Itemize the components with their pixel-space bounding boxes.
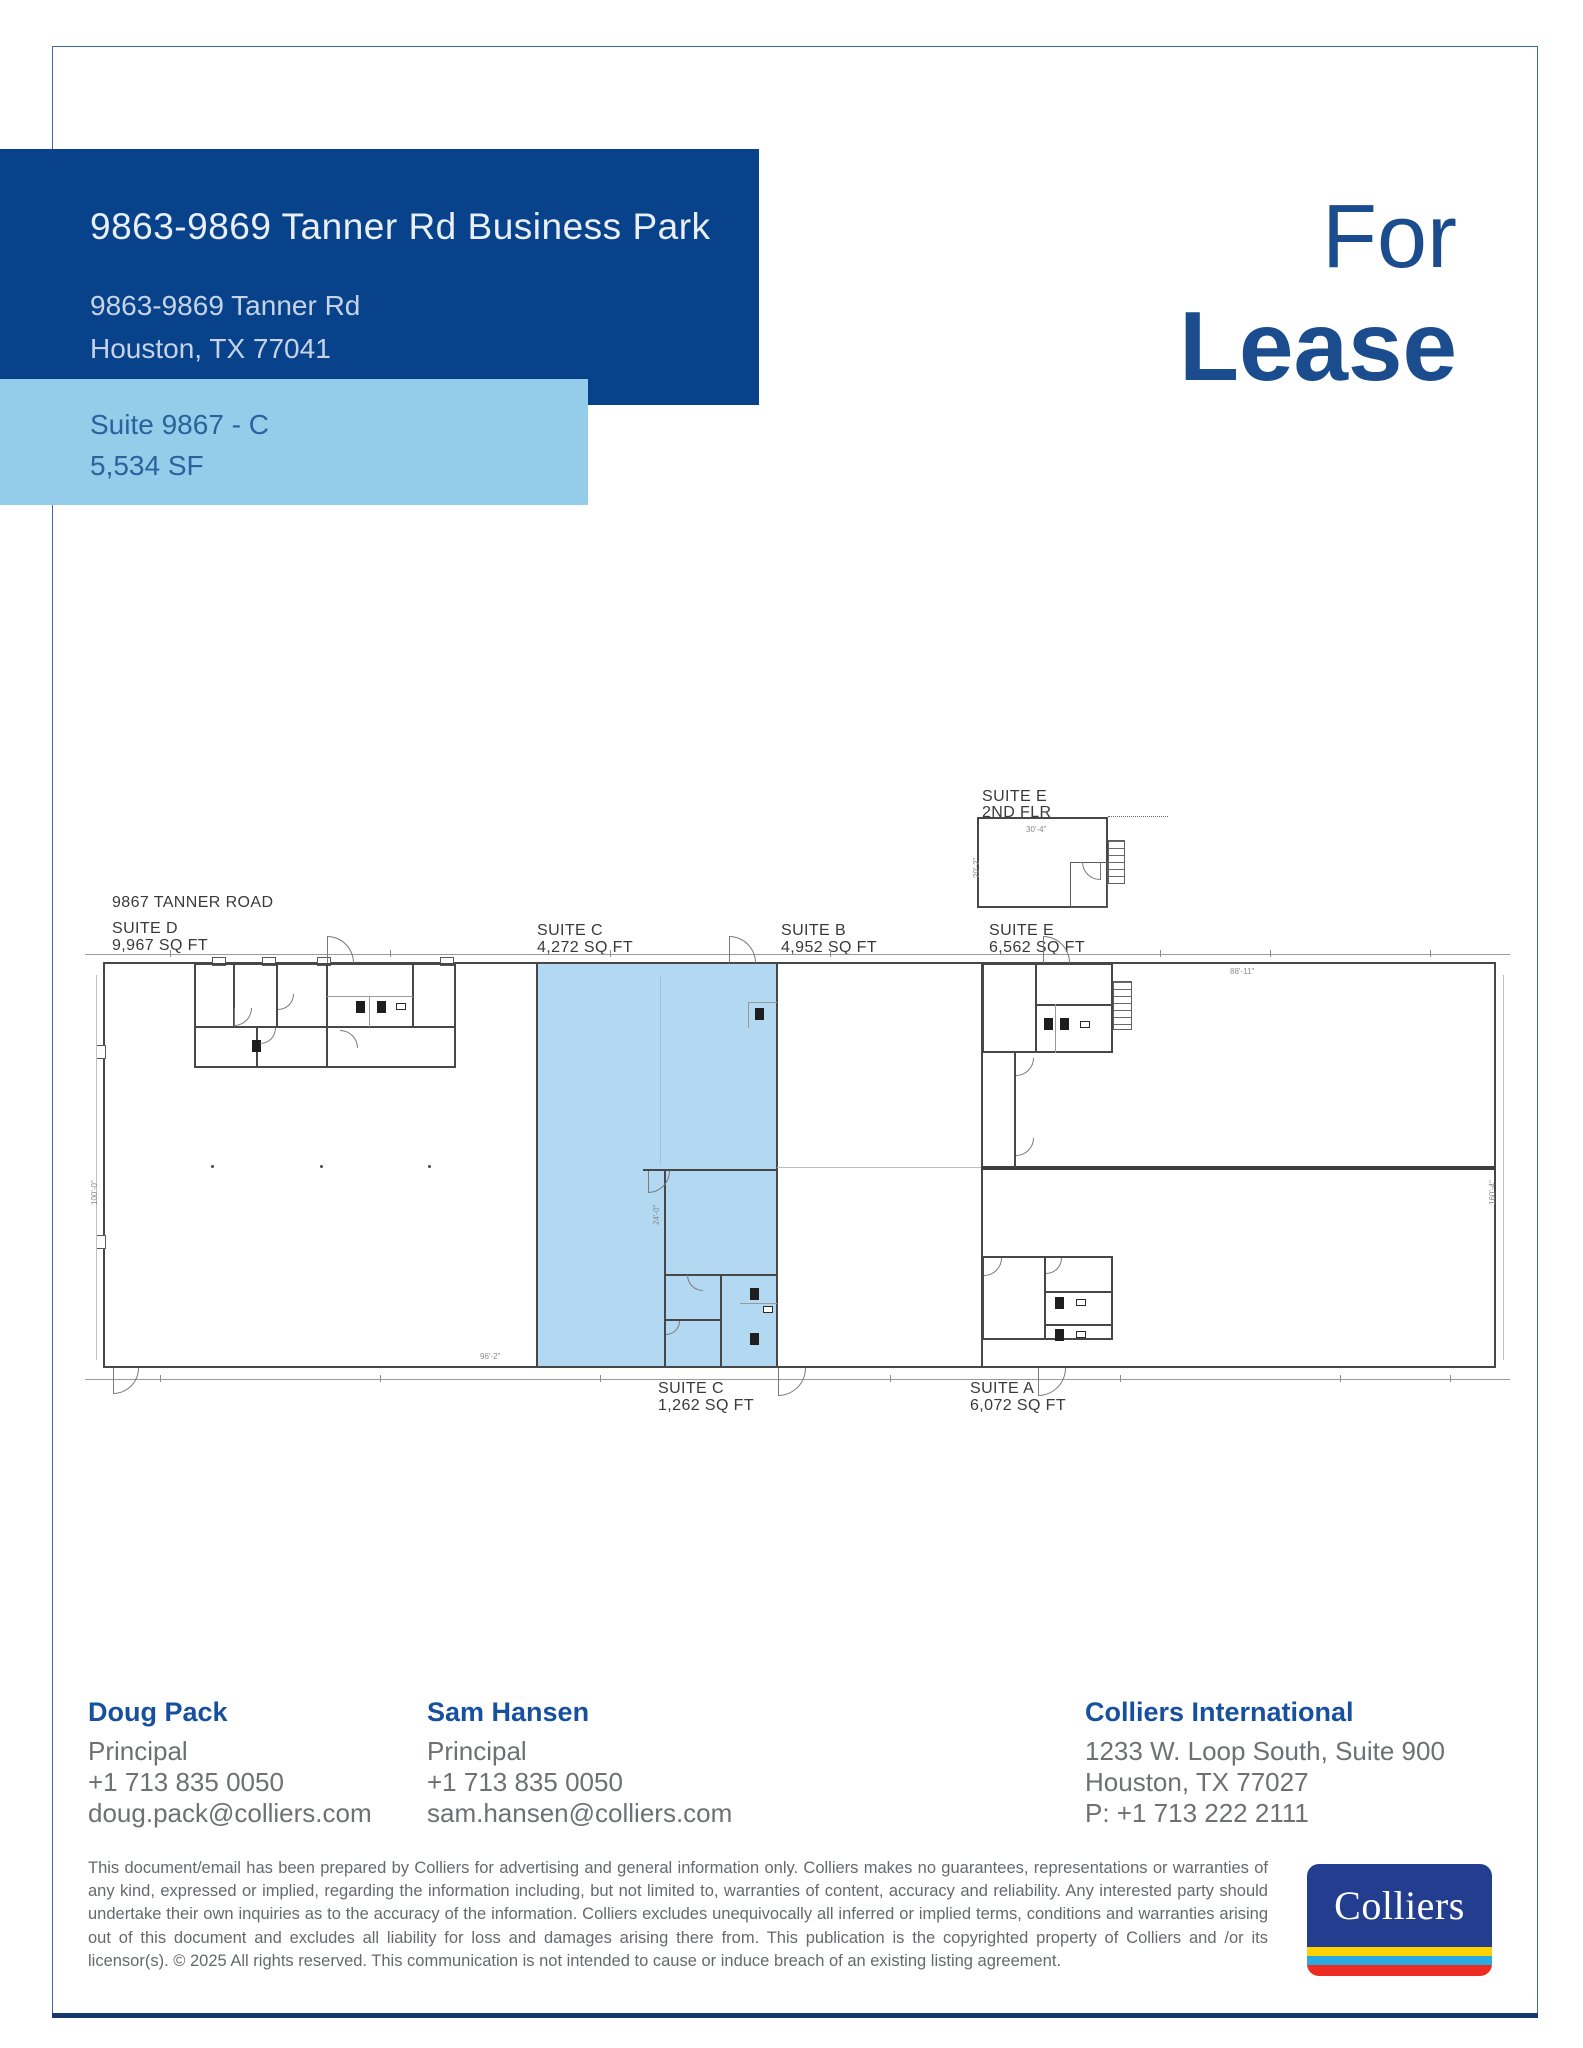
- dim-tick: [170, 950, 171, 957]
- exit-door-leaf: [778, 1368, 779, 1396]
- blue-dim-line: [660, 975, 661, 1165]
- office-address2: Houston, TX 77027: [1085, 1767, 1445, 1798]
- joint-line: [777, 1167, 981, 1168]
- sink-fixture: [396, 1003, 406, 1010]
- property-address: 9863-9869 Tanner Rd Houston, TX 77041: [90, 284, 360, 370]
- divider-d-c: [536, 962, 538, 1368]
- suite-c-top-name: SUITE C: [537, 922, 603, 939]
- dim-tick: [1270, 950, 1271, 957]
- dim-tick: [1430, 950, 1431, 957]
- office-phone: P: +1 713 222 2111: [1085, 1798, 1445, 1829]
- dim-tick: [160, 1375, 161, 1382]
- entry-door-leaf: [327, 936, 328, 963]
- suite-c-bottom-area: 1,262 SQ FT: [658, 1397, 754, 1414]
- contact-title: Principal: [88, 1736, 372, 1767]
- toilet-fixture: [377, 1001, 386, 1013]
- office-name: Colliers International: [1085, 1697, 1445, 1728]
- second-floor-door-leaf: [1100, 862, 1101, 880]
- entry-door-leaf: [729, 936, 730, 963]
- sink-fixture: [763, 1306, 773, 1313]
- property-title: 9863-9869 Tanner Rd Business Park: [90, 206, 711, 248]
- colliers-logo-field: Colliers: [1307, 1864, 1492, 1947]
- exit-door-arc: [1038, 1368, 1066, 1396]
- exit-door-arc: [113, 1368, 139, 1394]
- suite-number: Suite 9867 - C: [90, 404, 269, 445]
- frame-right-line: [1537, 46, 1538, 2013]
- for-text: For: [1179, 190, 1457, 285]
- dim-tick: [380, 1375, 381, 1382]
- suite-banner: [0, 379, 588, 505]
- suite-a-name: SUITE A: [970, 1380, 1034, 1397]
- toilet-fixture: [1055, 1297, 1064, 1309]
- suite-e-partition: [1055, 1004, 1056, 1053]
- contact-title: Principal: [427, 1736, 732, 1767]
- restroom-partition: [369, 996, 370, 1027]
- toilet-fixture: [755, 1008, 764, 1020]
- wall-notch: [96, 1045, 106, 1059]
- dim-30-4: 30'-4": [1026, 825, 1046, 834]
- second-floor-stair: [1108, 840, 1125, 884]
- lease-text: Lease: [1179, 297, 1457, 395]
- suite-c-partition: [740, 1303, 777, 1304]
- suite-a-wall: [1044, 1324, 1113, 1326]
- suite-c-restroom-line: [748, 1002, 749, 1028]
- divider-c-b: [776, 962, 778, 1368]
- suite-e-wall: [1035, 1004, 1113, 1006]
- dim-160-4: 160'-4": [1488, 1180, 1497, 1205]
- contact-email: sam.hansen@colliers.com: [427, 1798, 732, 1829]
- suite-d-name: SUITE D: [112, 920, 178, 937]
- exit-door-leaf: [113, 1368, 114, 1394]
- suite-e-2nd-name: SUITE E: [982, 788, 1047, 805]
- toilet-fixture: [750, 1333, 759, 1345]
- office-info: Colliers International 1233 W. Loop Sout…: [1085, 1697, 1445, 1829]
- suite-c-bottom-name: SUITE C: [658, 1380, 724, 1397]
- office-wall: [326, 963, 328, 1068]
- contact-name: Sam Hansen: [427, 1697, 732, 1728]
- offset-line-top: [85, 954, 1510, 955]
- column-dot: [211, 1165, 214, 1168]
- contact-name: Doug Pack: [88, 1697, 372, 1728]
- contact-phone: +1 713 835 0050: [88, 1767, 372, 1798]
- disclaimer-text: This document/email has been prepared by…: [88, 1857, 1268, 1973]
- dim-tick: [1340, 1375, 1341, 1382]
- wall-notch: [96, 1235, 106, 1249]
- dim-tick: [1450, 1375, 1451, 1382]
- frame-top-line: [52, 46, 1538, 47]
- toilet-fixture: [356, 1001, 365, 1013]
- toilet-fixture: [1055, 1329, 1064, 1341]
- dim-88-11: 88'-11": [1230, 967, 1254, 976]
- entry-door-arc: [327, 936, 354, 963]
- suite-c-door-leaf: [648, 1171, 649, 1193]
- suite-e-wall: [1035, 963, 1037, 1053]
- exit-door-leaf: [1038, 1368, 1039, 1396]
- dim-tick: [890, 1375, 891, 1382]
- dim-line-left: [96, 975, 97, 1360]
- suite-c-restroom-line: [748, 1002, 777, 1003]
- road-label: 9867 TANNER ROAD: [112, 894, 273, 911]
- logo-stripe-red: [1307, 1965, 1492, 1976]
- bottom-rule: [52, 2013, 1538, 2018]
- suite-e-cluster-outline: [982, 963, 1113, 1053]
- sink-fixture: [1076, 1299, 1086, 1306]
- address-line2: Houston, TX 77041: [90, 327, 360, 370]
- flyer-page: 9863-9869 Tanner Rd Business Park 9863-9…: [0, 0, 1583, 2048]
- second-floor-dash: [1108, 816, 1168, 817]
- entry-door-leaf: [1043, 936, 1044, 963]
- dim-96-2: 96'-2": [480, 1352, 500, 1361]
- toilet-fixture: [1044, 1018, 1053, 1030]
- dim-tick: [1160, 950, 1161, 957]
- dim-tick: [830, 950, 831, 957]
- address-line1: 9863-9869 Tanner Rd: [90, 284, 360, 327]
- office-address1: 1233 W. Loop South, Suite 900: [1085, 1736, 1445, 1767]
- colliers-wordmark: Colliers: [1334, 1882, 1465, 1929]
- exit-door-arc: [778, 1368, 806, 1396]
- suite-info: Suite 9867 - C 5,534 SF: [90, 404, 269, 486]
- contact-email: doug.pack@colliers.com: [88, 1798, 372, 1829]
- dim-line-right: [1503, 975, 1504, 1360]
- column-dot: [428, 1165, 431, 1168]
- suite-c-room-wall: [720, 1274, 722, 1368]
- entry-door-arc: [729, 936, 756, 963]
- dim-24-0: 24'-0": [652, 1205, 661, 1225]
- dim-tick: [390, 950, 391, 957]
- dim-tick: [600, 1375, 601, 1382]
- suite-size: 5,534 SF: [90, 445, 269, 486]
- logo-stripe-yellow: [1307, 1947, 1492, 1956]
- for-lease-headline: For Lease: [1179, 190, 1457, 395]
- sink-fixture: [1080, 1021, 1090, 1028]
- contact-doug-pack: Doug Pack Principal +1 713 835 0050 doug…: [88, 1697, 372, 1829]
- colliers-logo: Colliers: [1307, 1864, 1492, 1976]
- office-door-leaf: [234, 1008, 235, 1026]
- suite-a-wall: [1044, 1291, 1113, 1293]
- dim-tick: [610, 950, 611, 957]
- dim-20-2: 20'-2": [972, 858, 981, 878]
- restroom-line: [327, 996, 413, 997]
- toilet-fixture: [750, 1288, 759, 1300]
- column-dot: [320, 1165, 323, 1168]
- logo-stripe-cyan: [1307, 1956, 1492, 1965]
- sink-fixture: [1076, 1331, 1086, 1338]
- suite-c-room-wall: [664, 1170, 666, 1368]
- suite-b-name: SUITE B: [781, 922, 846, 939]
- dim-100-0: 100'-0": [90, 1180, 99, 1205]
- wall-e-a: [981, 1166, 1496, 1170]
- suite-e-stair: [1113, 981, 1132, 1030]
- toilet-fixture: [1060, 1018, 1069, 1030]
- suite-a-area: 6,072 SQ FT: [970, 1397, 1066, 1414]
- suite-d-area: 9,967 SQ FT: [112, 937, 208, 954]
- contact-sam-hansen: Sam Hansen Principal +1 713 835 0050 sam…: [427, 1697, 732, 1829]
- dim-tick: [1120, 1375, 1121, 1382]
- contact-phone: +1 713 835 0050: [427, 1767, 732, 1798]
